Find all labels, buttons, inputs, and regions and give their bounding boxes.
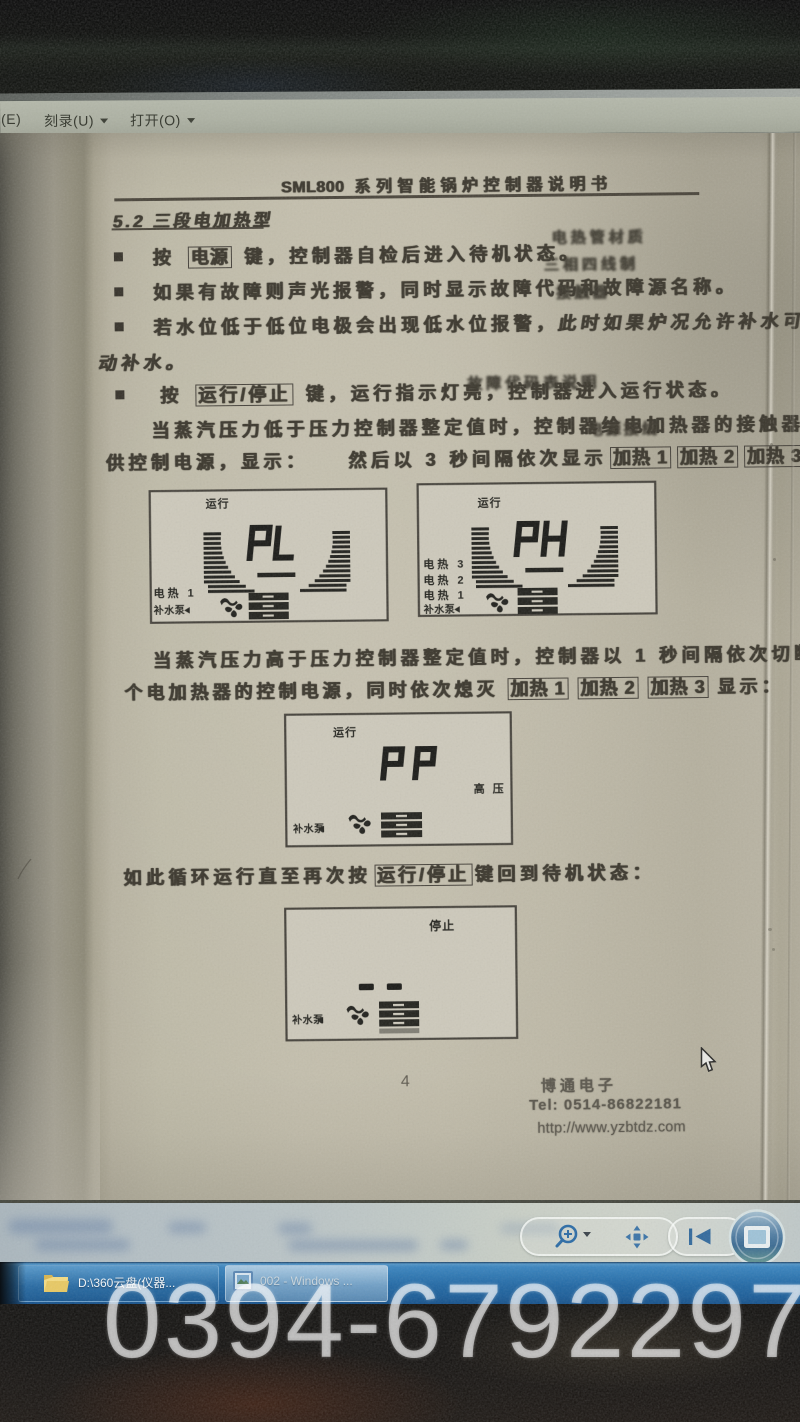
svg-text:运行: 运行 xyxy=(333,725,357,739)
svg-text:补水泵: 补水泵 xyxy=(153,604,186,617)
svg-text:电热 2: 电热 2 xyxy=(423,573,466,587)
svg-text:电热 3: 电热 3 xyxy=(423,557,466,571)
svg-text:电热 1: 电热 1 xyxy=(153,586,196,600)
svg-text:运行: 运行 xyxy=(478,495,502,509)
svg-text:停止: 停止 xyxy=(429,918,455,933)
svg-text:高压: 高压 xyxy=(474,781,512,795)
svg-text:补水泵: 补水泵 xyxy=(423,603,456,616)
svg-text:运行: 运行 xyxy=(206,496,230,510)
svg-text:电热 1: 电热 1 xyxy=(424,588,467,602)
